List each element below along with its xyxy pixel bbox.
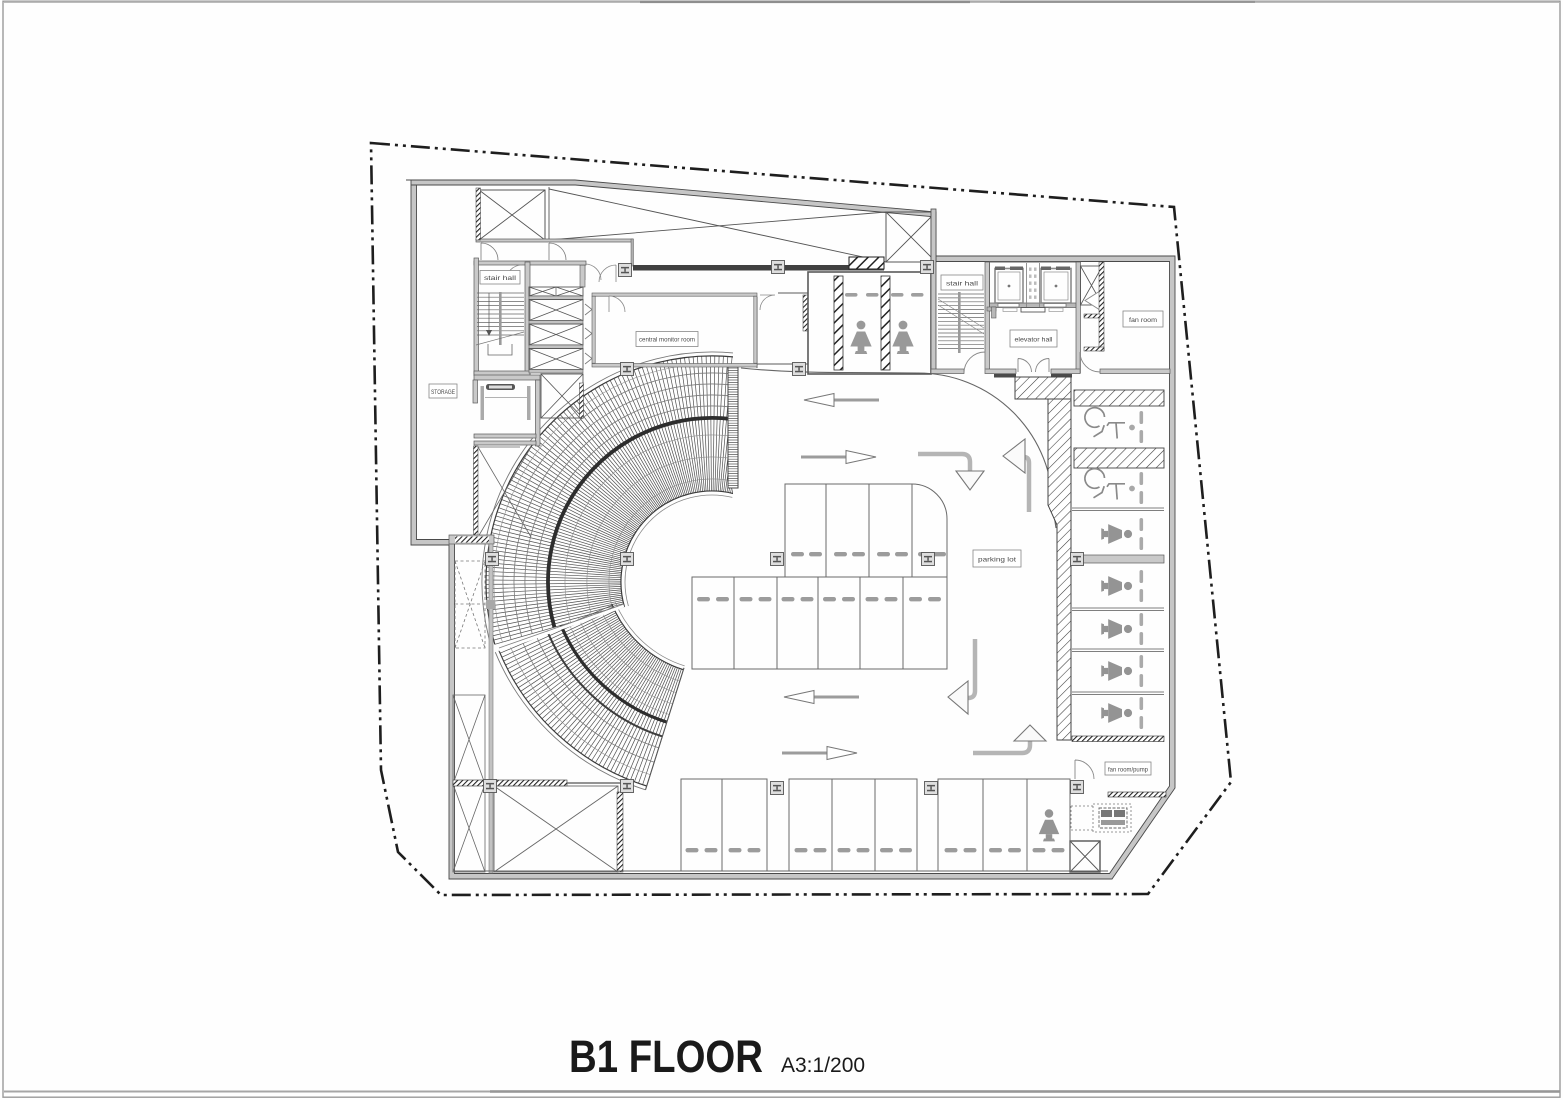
svg-text:stair hall: stair hall	[484, 275, 516, 282]
svg-text:B1 FLOOR: B1 FLOOR	[569, 1031, 763, 1082]
svg-text:stair hall: stair hall	[946, 281, 978, 288]
svg-text:fan room/pump: fan room/pump	[1108, 768, 1149, 774]
svg-text:STORAGE: STORAGE	[431, 390, 455, 396]
svg-text:fan room: fan room	[1129, 317, 1157, 324]
svg-text:central monitor room: central monitor room	[639, 337, 695, 344]
svg-text:A3:1/200: A3:1/200	[781, 1054, 865, 1077]
svg-text:parking lot: parking lot	[978, 557, 1016, 564]
svg-text:elevator hall: elevator hall	[1015, 337, 1053, 344]
